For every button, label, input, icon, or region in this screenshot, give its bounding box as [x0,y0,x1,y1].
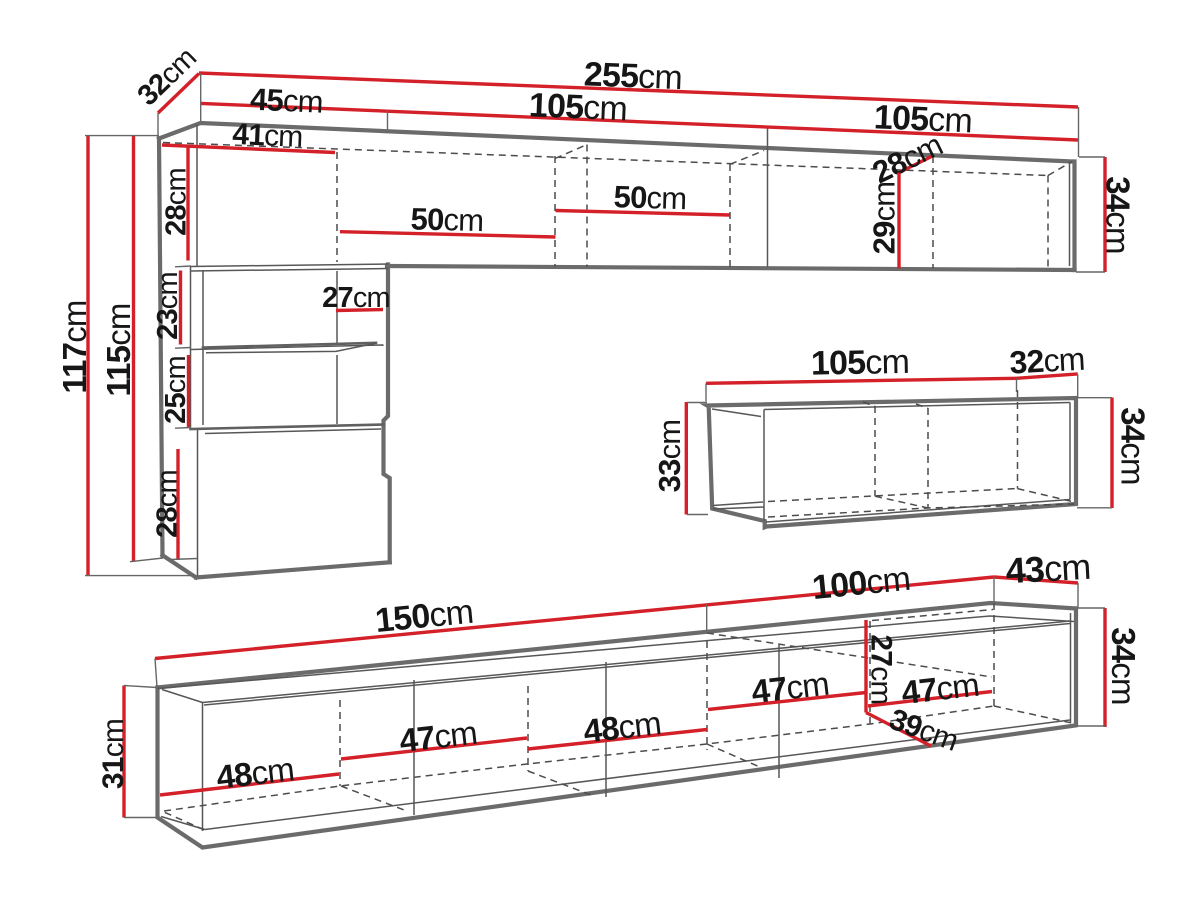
svg-text:29cm: 29cm [867,182,902,255]
svg-text:117cm: 117cm [56,300,93,393]
svg-text:105cm: 105cm [528,86,628,128]
svg-text:33cm: 33cm [652,420,687,493]
svg-text:34cm: 34cm [1100,176,1137,254]
svg-text:27cm: 27cm [865,634,898,704]
svg-text:28cm: 28cm [161,168,193,236]
svg-text:34cm: 34cm [1105,627,1142,705]
svg-text:31cm: 31cm [97,719,130,789]
svg-text:34cm: 34cm [1115,407,1152,485]
svg-text:27cm: 27cm [322,282,390,314]
svg-text:50cm: 50cm [613,179,687,216]
svg-text:115cm: 115cm [100,303,137,396]
svg-text:50cm: 50cm [410,201,483,238]
svg-text:41cm: 41cm [232,118,304,154]
svg-text:45cm: 45cm [249,82,323,120]
svg-text:28cm: 28cm [152,470,184,538]
svg-text:25cm: 25cm [160,356,192,424]
svg-text:23cm: 23cm [152,272,184,340]
svg-text:105cm: 105cm [811,343,910,383]
svg-text:32cm: 32cm [1009,341,1086,381]
